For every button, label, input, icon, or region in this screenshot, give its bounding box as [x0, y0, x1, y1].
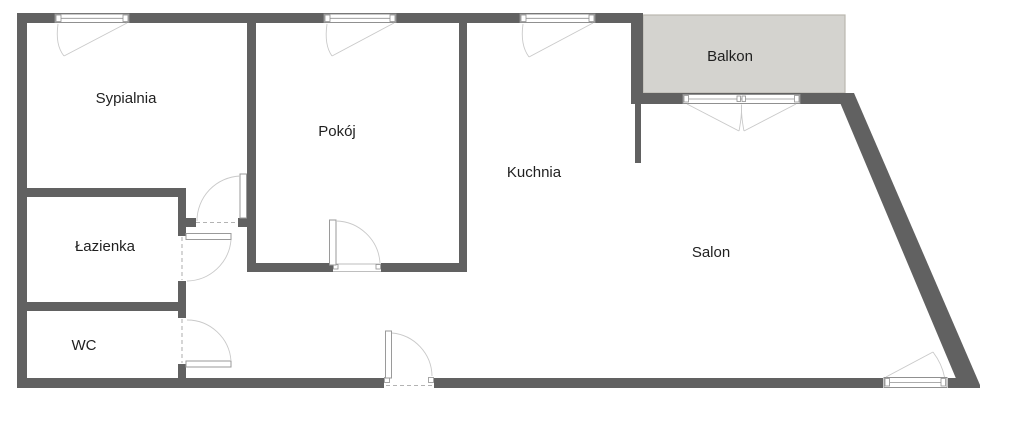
interior-walls: [17, 13, 641, 388]
window-kuchnia: [520, 14, 595, 57]
wall-lazienka-top: [17, 188, 186, 197]
wall-bath-right-middle: [178, 281, 186, 318]
wall-sypialnia-door-stub-right: [238, 218, 247, 227]
door-pokoj: [330, 220, 382, 273]
window-salon: [883, 352, 948, 388]
room-label-balkon: Balkon: [707, 48, 753, 65]
floor-plan: Sypialnia Pokój Kuchnia Salon Balkon Łaz…: [0, 0, 1024, 426]
window-pokoj: [324, 14, 396, 56]
door-wc: [182, 319, 231, 367]
wall-diagonal-right: [836, 93, 980, 388]
room-label-salon: Salon: [692, 244, 730, 261]
room-label-lazienka: Łazienka: [75, 238, 136, 255]
door-entrance: [384, 331, 434, 389]
room-label-pokoj: Pokój: [318, 123, 356, 140]
wall-bottom: [17, 378, 974, 388]
wall-sypialnia-pokoj: [247, 13, 256, 272]
room-label-sypialnia: Sypialnia: [96, 90, 158, 107]
room-label-kuchnia: Kuchnia: [507, 164, 562, 181]
wall-lazienka-wc-divider: [17, 302, 186, 311]
wall-sypialnia-door-stub-left: [178, 218, 196, 227]
room-label-wc: WC: [72, 337, 97, 354]
floor-plan-canvas: Sypialnia Pokój Kuchnia Salon Balkon Łaz…: [0, 0, 1024, 426]
door-lazienka: [182, 234, 231, 282]
wall-pokoj-right: [459, 13, 467, 272]
wall-bath-right-upper: [178, 188, 186, 236]
wall-left: [17, 13, 27, 388]
door-sypialnia: [196, 174, 247, 223]
window-balcony-door: [683, 95, 800, 132]
wall-pokoj-bottom-right: [381, 263, 467, 272]
wall-kitchen-balcony-divider: [631, 13, 643, 104]
wall-wc-right-lower: [178, 364, 186, 388]
wall-pokoj-bottom-left: [247, 263, 333, 272]
window-sypialnia: [55, 14, 129, 56]
wall-kitchen-salon-stub: [635, 104, 641, 163]
